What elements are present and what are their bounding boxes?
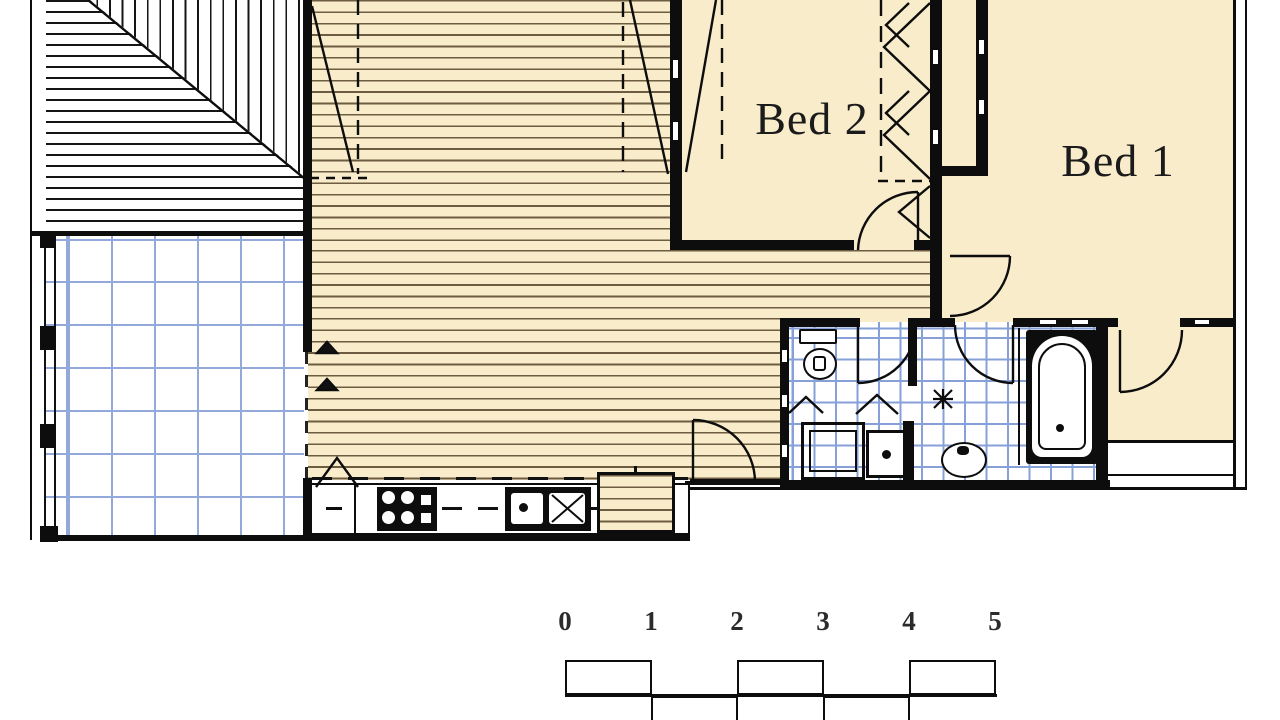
window-mark	[979, 100, 984, 114]
wall	[690, 479, 782, 485]
scale-box	[651, 696, 738, 720]
sink	[505, 487, 591, 531]
cooktop-knob	[421, 513, 431, 523]
cooktop-knob	[421, 495, 431, 505]
wall-dashed	[305, 352, 308, 480]
scale-box	[909, 660, 996, 695]
window-mark	[782, 350, 787, 362]
wall	[40, 326, 56, 350]
deck-boards	[46, 0, 307, 236]
living-floorboards	[308, 0, 670, 252]
living-floorboards	[308, 250, 930, 318]
window-mark	[1195, 320, 1209, 324]
scale-box	[823, 696, 910, 720]
entry-hall-floor	[1108, 330, 1233, 442]
basin-tap	[957, 446, 969, 455]
bathtub-rim	[1038, 343, 1086, 450]
toilet-cistern	[799, 329, 837, 344]
cabinet-divider	[354, 483, 356, 535]
wall	[303, 0, 312, 352]
wall	[930, 0, 942, 322]
cabinet-handle	[326, 507, 342, 510]
burner	[382, 491, 395, 504]
deck	[30, 0, 308, 236]
wall	[785, 318, 860, 327]
wall	[916, 318, 955, 327]
window-mark	[782, 395, 787, 407]
sink-tap	[519, 503, 528, 512]
shower-tray	[809, 430, 857, 472]
scale-label: 4	[892, 606, 926, 637]
wall	[1018, 328, 1020, 465]
burner	[401, 511, 414, 524]
scale-label: 1	[634, 606, 668, 637]
wall	[976, 0, 988, 174]
burner	[382, 511, 395, 524]
wall	[670, 240, 854, 250]
burner	[401, 491, 414, 504]
patio-tiles	[44, 236, 304, 536]
window-mark	[1040, 320, 1056, 324]
floor-plan: Bed 2 Bed 1 0 1 2 3 4 5	[0, 0, 1280, 720]
window-mark	[673, 60, 678, 78]
window-mark	[979, 40, 984, 54]
scale-label: 2	[720, 606, 754, 637]
living-floorboards	[308, 318, 780, 480]
eaves-gap	[1236, 0, 1245, 490]
sink-drainer	[549, 493, 585, 524]
bathtub-drain	[1056, 424, 1064, 432]
window-mark	[933, 130, 938, 144]
fridge-tick	[634, 466, 637, 472]
wall	[690, 487, 1247, 490]
wall	[40, 236, 56, 248]
wall	[1245, 0, 1247, 490]
scale-label: 0	[548, 606, 582, 637]
wall	[40, 424, 56, 448]
scale-box	[737, 660, 824, 695]
laundry-tub-drain	[882, 450, 891, 459]
toilet-seat	[813, 356, 826, 371]
window-mark	[1072, 320, 1088, 324]
wall	[1233, 0, 1236, 490]
cooktop	[377, 487, 437, 531]
wall	[942, 166, 988, 176]
wall	[908, 318, 917, 386]
window-mark	[933, 50, 938, 64]
fridge-space	[597, 472, 675, 533]
bed1-label: Bed 1	[1038, 134, 1198, 187]
deck-edge-line	[30, 0, 32, 540]
bed2-label: Bed 2	[732, 92, 892, 145]
patio-window-wall	[44, 236, 56, 536]
scale-box	[565, 660, 652, 695]
wall	[44, 535, 690, 541]
window-mark	[782, 445, 787, 457]
scale-label: 5	[978, 606, 1012, 637]
window-mark	[673, 122, 678, 140]
wall	[1108, 440, 1233, 443]
wall	[1108, 474, 1235, 476]
scale-label: 3	[806, 606, 840, 637]
